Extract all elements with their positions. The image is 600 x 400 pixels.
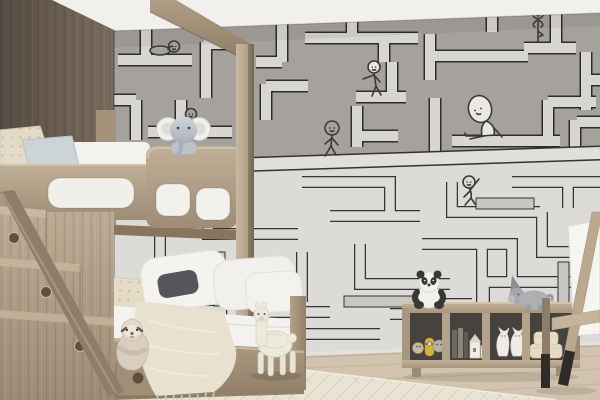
shelf-divider [522, 312, 530, 360]
rail-cutout [48, 178, 134, 208]
stair-finger-hole [9, 233, 20, 244]
storage-stairs [0, 190, 124, 400]
shelf-shadow [403, 372, 579, 382]
room-scene [0, 0, 600, 400]
shelf-divider [482, 312, 490, 360]
shelf-bottom-slab [402, 360, 580, 368]
rail-cutout [196, 188, 230, 220]
drawer-hole [133, 373, 144, 384]
kids-room-photo [0, 0, 600, 400]
panda-plush [414, 271, 444, 310]
easel-rear-leg [542, 298, 550, 358]
shelf-leg [412, 368, 421, 377]
shelf-divider [442, 312, 450, 360]
shelf-side-left [402, 308, 410, 366]
easel-rear-leg-tip [541, 354, 550, 388]
rail-cutout [156, 184, 190, 216]
stair-finger-hole [41, 287, 52, 298]
